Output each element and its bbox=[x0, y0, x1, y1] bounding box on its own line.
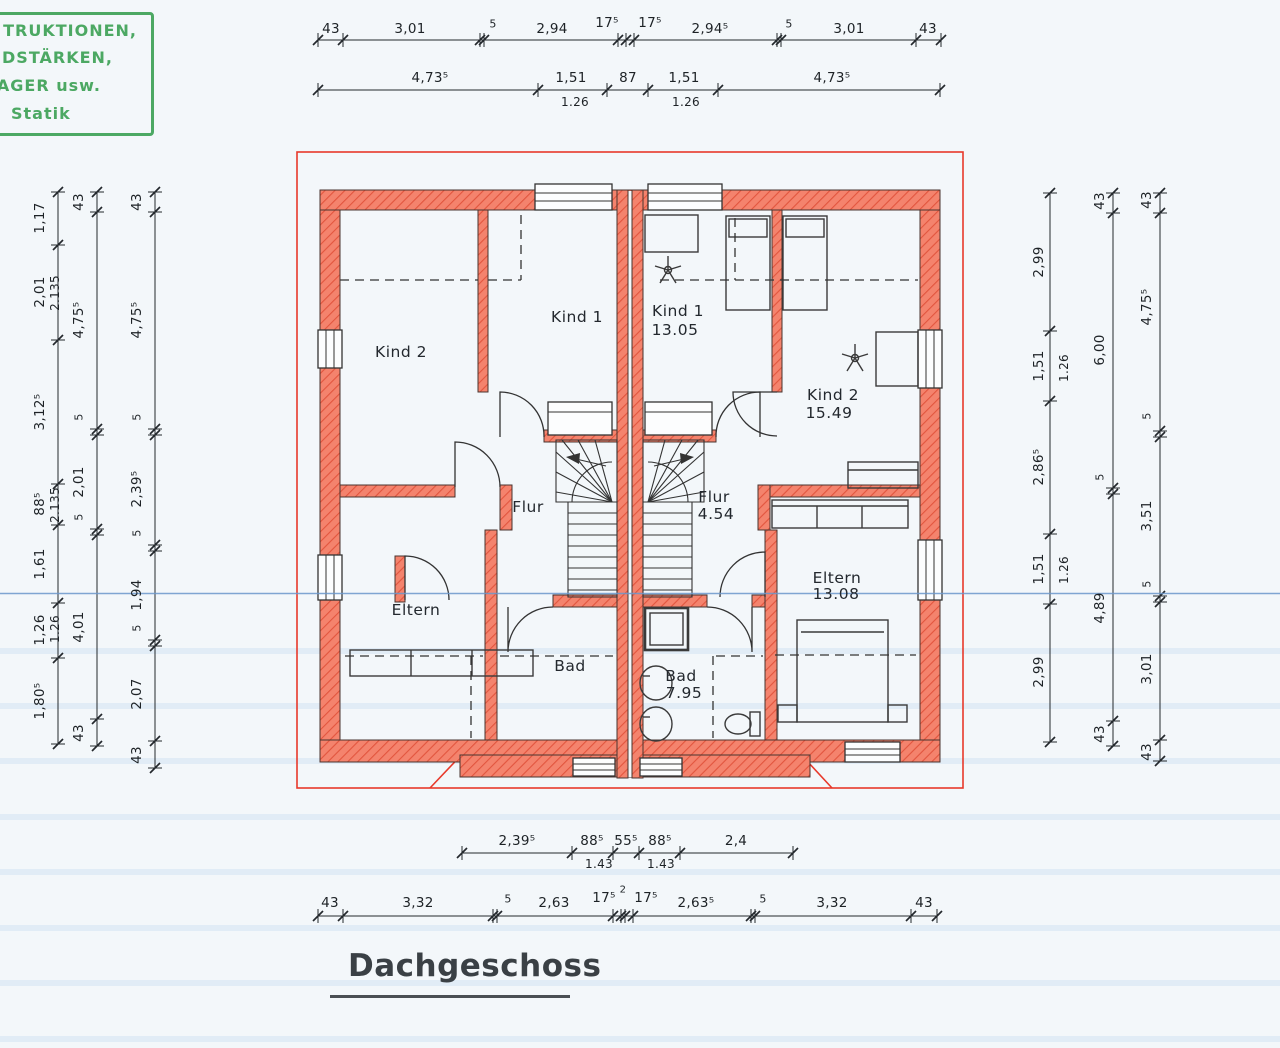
room-label-kind2-right: Kind 2 bbox=[807, 386, 859, 404]
room-area-bad-right: 7.95 bbox=[666, 684, 703, 702]
dimension-label: 4,73⁵ bbox=[412, 70, 449, 86]
dimension-sublabel: 1.43 bbox=[647, 857, 675, 871]
room-label-eltern-left: Eltern bbox=[392, 601, 441, 619]
dimension-label: 2,01 bbox=[32, 276, 48, 307]
dimension-label: 17⁵ bbox=[638, 15, 662, 31]
stamp-line: TRUKTIONEN, bbox=[3, 21, 137, 40]
approval-stamp: TRUKTIONEN, DSTÄRKEN, AGER usw. Statik bbox=[0, 12, 154, 136]
dimension-label: 17⁵ bbox=[634, 890, 658, 906]
dimension-label: 88⁵ bbox=[32, 492, 48, 516]
drawing-title: Dachgeschoss bbox=[348, 948, 601, 984]
room-area-kind1-right: 13.05 bbox=[652, 321, 699, 339]
room-area-kind2-right: 15.49 bbox=[806, 404, 853, 422]
dimension-label: 43 bbox=[71, 193, 87, 211]
dimension-label: 43 bbox=[919, 21, 937, 37]
dimension-label: 5 bbox=[1094, 473, 1107, 480]
dimension-label: 5 bbox=[131, 413, 144, 420]
dimension-label: 2,99 bbox=[1031, 246, 1047, 277]
dimension-label: 5 bbox=[1141, 412, 1154, 419]
dimension-label: 3,01 bbox=[394, 21, 425, 37]
dimension-sublabel: 1.43 bbox=[585, 857, 613, 871]
room-label-kind1-right: Kind 1 bbox=[652, 302, 704, 320]
dimension-label: 43 bbox=[1092, 725, 1108, 743]
room-area-flur-right: 4.54 bbox=[698, 505, 735, 523]
dimension-label: 1,80⁵ bbox=[32, 683, 48, 720]
dimension-label: 88⁵ bbox=[648, 833, 672, 849]
dimension-label: 5 bbox=[73, 413, 86, 420]
dimension-sublabel: 1.26 bbox=[1057, 556, 1071, 584]
dimension-label: 17⁵ bbox=[592, 890, 616, 906]
room-label-bad-right: Bad bbox=[665, 667, 696, 685]
dimension-label: 2,86⁵ bbox=[1031, 449, 1047, 486]
office-chair-icon bbox=[655, 256, 681, 283]
office-chair-icon bbox=[842, 344, 868, 371]
dimension-label: 2,94⁵ bbox=[692, 21, 729, 37]
dimension-label: 4,75⁵ bbox=[1139, 289, 1155, 326]
room-label-flur-left: Flur bbox=[512, 498, 543, 516]
room-label-bad-left: Bad bbox=[554, 657, 585, 675]
room-area-eltern-right: 13.08 bbox=[813, 585, 860, 603]
dimension-label: 3,32 bbox=[816, 895, 847, 911]
dimension-label: 3,01 bbox=[1139, 653, 1155, 684]
room-label-flur-right: Flur bbox=[698, 488, 729, 506]
dimension-label: 1,17 bbox=[32, 202, 48, 233]
dimension-label: 5 bbox=[489, 18, 496, 31]
dimension-label: 2,39⁵ bbox=[129, 471, 145, 508]
dimension-label: 4,75⁵ bbox=[129, 302, 145, 339]
staircase-left bbox=[556, 440, 617, 597]
dimension-label: 1,51 bbox=[1031, 553, 1047, 584]
dimension-gap-label: 2 bbox=[620, 885, 627, 896]
dimension-sublabel: 1.26 bbox=[48, 615, 62, 643]
dimension-label: 4,75⁵ bbox=[71, 302, 87, 339]
dimension-label: 43 bbox=[129, 193, 145, 211]
dimension-sublabel: 1.26 bbox=[1057, 354, 1071, 382]
dimension-sublabel: 2.135 bbox=[48, 275, 62, 311]
dimension-label: 5 bbox=[785, 18, 792, 31]
dimension-label: 43 bbox=[1139, 191, 1155, 209]
dimension-label: 43 bbox=[1139, 743, 1155, 761]
dimension-label: 43 bbox=[321, 895, 339, 911]
dimension-label: 2,99 bbox=[1031, 656, 1047, 687]
room-label-kind2-left: Kind 2 bbox=[375, 343, 427, 361]
dimension-label: 5 bbox=[759, 893, 766, 906]
dimension-label: 5 bbox=[504, 893, 511, 906]
dimension-label: 43 bbox=[71, 724, 87, 742]
dimension-label: 4,73⁵ bbox=[814, 70, 851, 86]
dimension-sublabel: 1.26 bbox=[672, 95, 700, 109]
dimension-label: 1,61 bbox=[32, 548, 48, 579]
dimension-label: 4,89 bbox=[1092, 592, 1108, 623]
walls bbox=[320, 190, 940, 778]
dimension-label: 3,51 bbox=[1139, 500, 1155, 531]
dimension-label: 3,32 bbox=[402, 895, 433, 911]
dimension-label: 43 bbox=[915, 895, 933, 911]
dimension-label: 5 bbox=[73, 513, 86, 520]
dimension-label: 2,4 bbox=[725, 833, 747, 849]
dimension-label: 43 bbox=[322, 21, 340, 37]
dimension-label: 1,51 bbox=[1031, 350, 1047, 381]
dimension-label: 4,01 bbox=[71, 611, 87, 642]
dimension-label: 2,39⁵ bbox=[499, 833, 536, 849]
dimension-label: 2,01 bbox=[71, 466, 87, 497]
dimension-sublabel: 1.26 bbox=[561, 95, 589, 109]
dimension-label: 5 bbox=[131, 624, 144, 631]
title-underline bbox=[330, 995, 570, 998]
stamp-line: DSTÄRKEN, bbox=[2, 48, 113, 67]
dimension-label: 43 bbox=[1092, 192, 1108, 210]
dimension-sublabel: 2.135 bbox=[48, 487, 62, 523]
dimension-label: 2,94 bbox=[536, 21, 567, 37]
dimension-label: 5 bbox=[1141, 580, 1154, 587]
dimension-label: 43 bbox=[129, 746, 145, 764]
dimension-label: 1,26 bbox=[32, 614, 48, 645]
dimension-chains bbox=[51, 33, 1167, 923]
dimension-label: 87 bbox=[619, 70, 637, 86]
dimension-label: 55⁵ bbox=[614, 833, 638, 849]
dimension-label: 1,51 bbox=[668, 70, 699, 86]
floor-plan-page: TRUKTIONEN, DSTÄRKEN, AGER usw. Statik K… bbox=[0, 0, 1280, 1048]
stamp-line: AGER usw. bbox=[0, 76, 101, 95]
dimension-label: 2,63 bbox=[538, 895, 569, 911]
dimension-label: 2,07 bbox=[129, 678, 145, 709]
dimension-label: 3,12⁵ bbox=[32, 394, 48, 431]
dimension-label: 2,63⁵ bbox=[678, 895, 715, 911]
room-label-kind1-left: Kind 1 bbox=[551, 308, 603, 326]
dimension-label: 88⁵ bbox=[580, 833, 604, 849]
dimension-label: 1,94 bbox=[129, 579, 145, 610]
staircase-right bbox=[643, 440, 704, 597]
dimension-label: 1,51 bbox=[555, 70, 586, 86]
stamp-line: Statik bbox=[11, 104, 71, 123]
dimension-label: 6,00 bbox=[1092, 334, 1108, 365]
dimension-label: 5 bbox=[131, 529, 144, 536]
dimension-label: 17⁵ bbox=[595, 15, 619, 31]
dimension-label: 3,01 bbox=[833, 21, 864, 37]
